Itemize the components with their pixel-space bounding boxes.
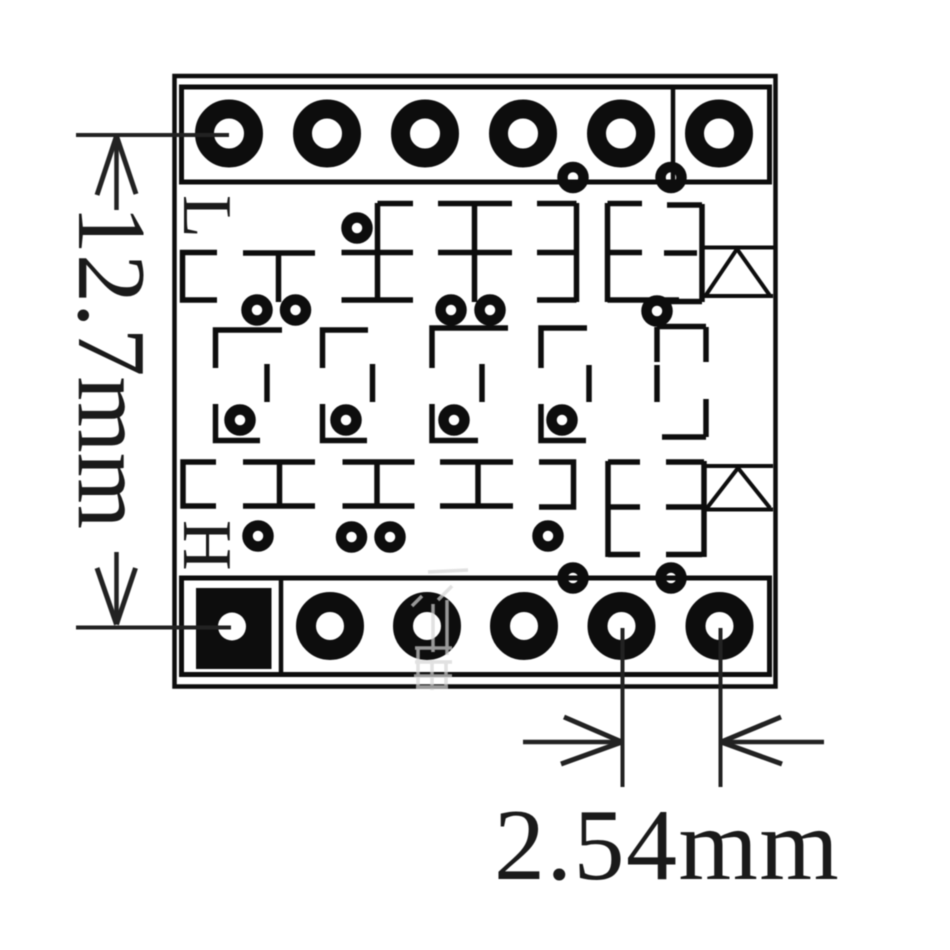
svg-text:2.54mm: 2.54mm [494, 789, 840, 902]
svg-text:L: L [168, 195, 245, 238]
svg-text:12.7mm: 12.7mm [57, 205, 165, 529]
svg-text:H: H [168, 520, 245, 571]
